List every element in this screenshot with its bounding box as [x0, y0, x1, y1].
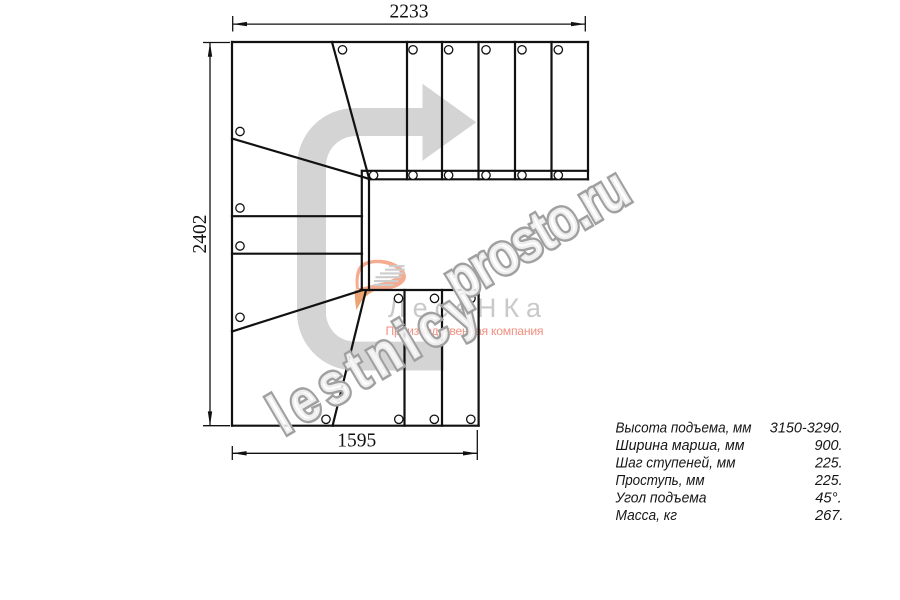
svg-text:225.: 225. [814, 472, 842, 489]
svg-text:1595: 1595 [337, 431, 376, 452]
svg-text:900.: 900. [815, 437, 843, 454]
svg-text:Масса, кг: Масса, кг [616, 507, 678, 524]
svg-text:Ширина марша, мм: Ширина марша, мм [616, 437, 745, 454]
svg-text:Высота подъема, мм: Высота подъема, мм [616, 420, 752, 437]
svg-text:3150-3290.: 3150-3290. [770, 420, 843, 437]
svg-text:267.: 267. [814, 507, 843, 524]
svg-text:225.: 225. [814, 455, 842, 472]
svg-text:Проступь, мм: Проступь, мм [616, 472, 705, 489]
svg-text:45°.: 45°. [815, 490, 842, 507]
svg-text:2402: 2402 [190, 215, 211, 254]
svg-text:Угол подъема: Угол подъема [615, 490, 707, 507]
svg-text:Шаг ступеней, мм: Шаг ступеней, мм [616, 455, 736, 472]
svg-text:2233: 2233 [390, 1, 429, 22]
